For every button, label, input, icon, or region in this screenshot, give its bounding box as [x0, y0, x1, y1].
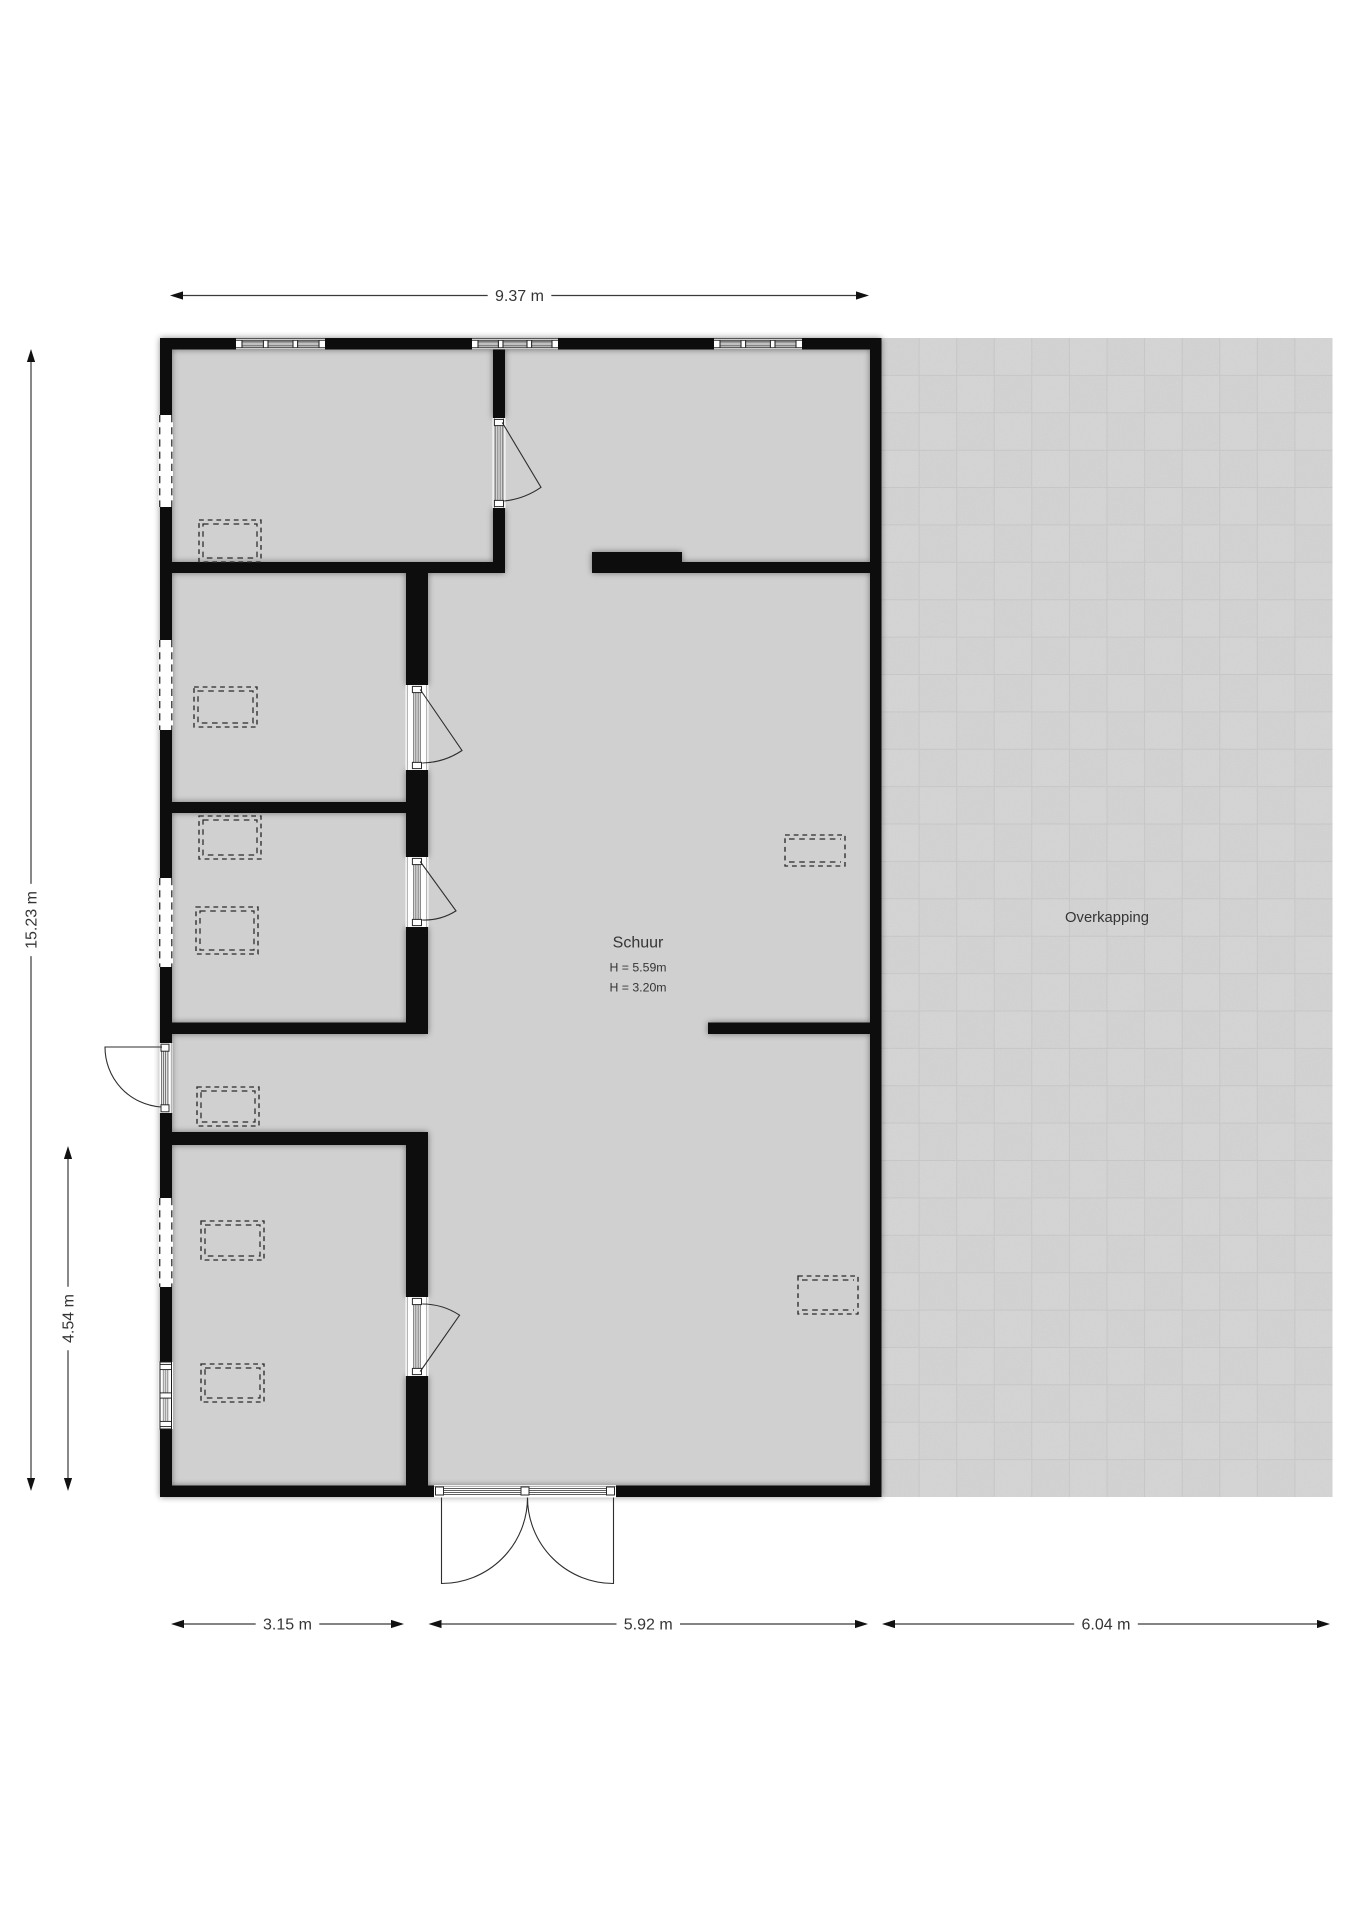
svg-text:6.04 m: 6.04 m — [1082, 1617, 1131, 1634]
svg-text:15.23 m: 15.23 m — [24, 891, 41, 949]
svg-text:Overkapping: Overkapping — [1065, 910, 1149, 926]
svg-text:5.92 m: 5.92 m — [624, 1617, 673, 1634]
svg-text:4.54 m: 4.54 m — [61, 1294, 78, 1343]
svg-text:Schuur: Schuur — [613, 935, 664, 952]
svg-text:3.15 m: 3.15 m — [263, 1617, 312, 1634]
svg-text:9.37 m: 9.37 m — [495, 288, 544, 305]
svg-text:H = 5.59m: H = 5.59m — [609, 961, 666, 975]
svg-text:H = 3.20m: H = 3.20m — [609, 981, 666, 995]
